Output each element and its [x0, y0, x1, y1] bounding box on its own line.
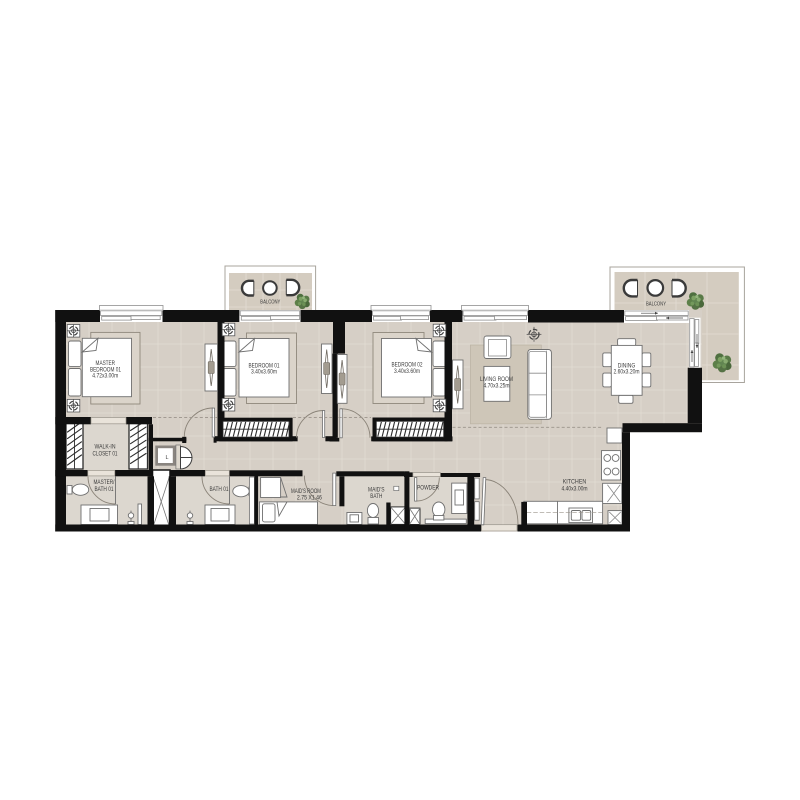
svg-text:MAID'S: MAID'S — [368, 488, 385, 494]
svg-text:4.72x3.00m: 4.72x3.00m — [92, 374, 118, 380]
svg-text:MASTER: MASTER — [96, 361, 116, 367]
svg-text:CLOSET 01: CLOSET 01 — [93, 452, 119, 458]
svg-text:LIVING ROOM: LIVING ROOM — [480, 377, 513, 383]
svg-text:3.40x3.60m: 3.40x3.60m — [394, 369, 420, 375]
svg-text:2.75 X1.46: 2.75 X1.46 — [297, 496, 323, 502]
svg-text:BATH 01: BATH 01 — [95, 487, 115, 493]
svg-text:3.40x3.60m: 3.40x3.60m — [251, 370, 277, 376]
svg-text:WALK-IN: WALK-IN — [95, 445, 116, 451]
svg-text:BEDROOM 01: BEDROOM 01 — [249, 364, 281, 370]
svg-text:BATH: BATH — [370, 494, 382, 500]
svg-text:BATH 01: BATH 01 — [210, 487, 230, 493]
svg-text:BALCONY: BALCONY — [260, 299, 280, 305]
svg-text:4.40x3.00m: 4.40x3.00m — [562, 486, 588, 492]
svg-text:BALCONY: BALCONY — [646, 302, 666, 308]
svg-text:BEDROOM 02: BEDROOM 02 — [392, 363, 424, 369]
svg-text:MAID'S ROOM: MAID'S ROOM — [291, 489, 321, 495]
svg-text:KITCHEN: KITCHEN — [563, 480, 587, 486]
svg-text:L: L — [165, 455, 168, 461]
svg-text:4.70x3.25m: 4.70x3.25m — [484, 384, 510, 390]
svg-text:2.60x3.20m: 2.60x3.20m — [614, 370, 640, 376]
svg-text:POWDER: POWDER — [417, 486, 440, 492]
svg-text:MASTER/: MASTER/ — [94, 480, 115, 486]
